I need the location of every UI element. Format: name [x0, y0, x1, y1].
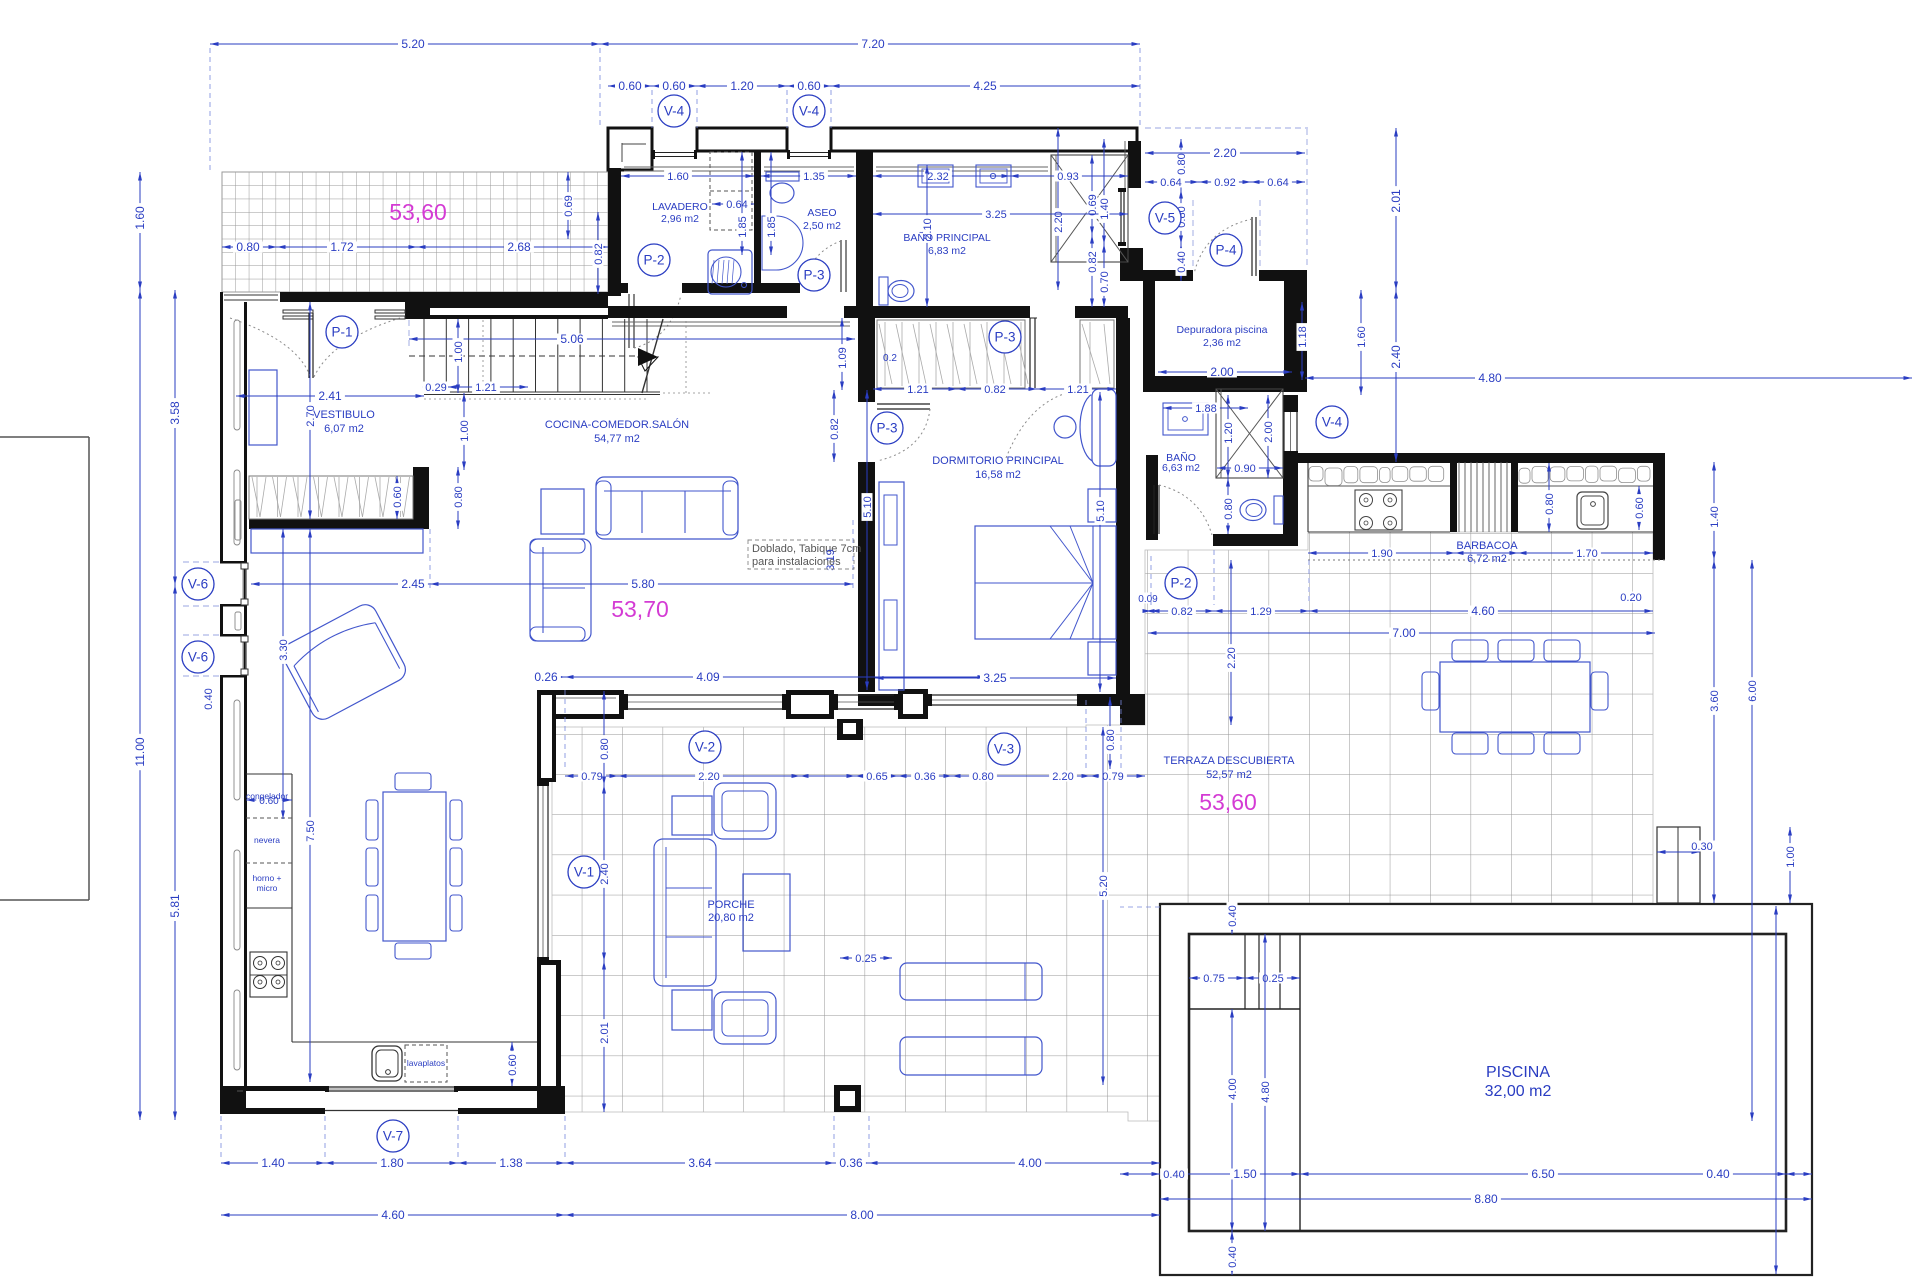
svg-text:0.90: 0.90: [1234, 463, 1255, 475]
svg-text:3.19: 3.19: [825, 549, 837, 570]
svg-text:0.2: 0.2: [883, 353, 897, 364]
svg-text:DORMITORIO PRINCIPAL: DORMITORIO PRINCIPAL: [932, 455, 1064, 467]
svg-text:2.20: 2.20: [1213, 146, 1237, 160]
svg-text:0.40: 0.40: [1176, 251, 1188, 272]
svg-text:1.00: 1.00: [459, 420, 471, 441]
svg-text:0.82: 0.82: [984, 384, 1005, 396]
svg-text:0.60: 0.60: [1634, 497, 1646, 518]
svg-text:1.90: 1.90: [1371, 548, 1392, 560]
svg-text:0.80: 0.80: [972, 771, 993, 783]
svg-text:1.40: 1.40: [261, 1156, 285, 1170]
svg-text:0.70: 0.70: [1099, 271, 1111, 292]
svg-text:horno +: horno +: [252, 873, 281, 883]
svg-text:4.00: 4.00: [1018, 1156, 1042, 1170]
svg-text:1.09: 1.09: [837, 347, 849, 368]
svg-text:V-4: V-4: [1322, 415, 1343, 430]
svg-text:1.60: 1.60: [1356, 326, 1368, 347]
svg-text:6,63 m2: 6,63 m2: [1162, 462, 1200, 474]
svg-text:0.79: 0.79: [1102, 771, 1123, 783]
svg-text:1.88: 1.88: [1195, 403, 1216, 415]
svg-text:8.00: 8.00: [850, 1208, 874, 1222]
svg-text:0.25: 0.25: [1262, 973, 1283, 985]
svg-text:4.00: 4.00: [1227, 1078, 1239, 1099]
svg-text:0.80: 0.80: [236, 240, 260, 254]
svg-text:1.40: 1.40: [1099, 198, 1111, 219]
svg-text:2.32: 2.32: [927, 171, 948, 183]
svg-text:1.29: 1.29: [1250, 606, 1271, 618]
svg-text:0.82: 0.82: [829, 418, 841, 439]
svg-text:1.20: 1.20: [1223, 422, 1235, 443]
svg-text:P-2: P-2: [1170, 576, 1191, 591]
svg-text:2.40: 2.40: [1389, 345, 1403, 369]
svg-text:0.92: 0.92: [1214, 177, 1235, 189]
svg-text:0.80: 0.80: [1176, 153, 1188, 174]
svg-text:0.80: 0.80: [1544, 493, 1556, 514]
svg-text:0.69: 0.69: [563, 195, 575, 216]
svg-text:0.20: 0.20: [1620, 592, 1641, 604]
svg-text:0.69: 0.69: [1087, 194, 1099, 215]
svg-text:V-6: V-6: [188, 650, 208, 665]
svg-text:1.85: 1.85: [766, 216, 778, 237]
svg-text:2.40: 2.40: [599, 863, 611, 884]
svg-text:P-1: P-1: [331, 325, 352, 340]
svg-text:1.38: 1.38: [499, 1156, 523, 1170]
svg-text:0.30: 0.30: [1691, 841, 1712, 853]
svg-text:0.64: 0.64: [1267, 177, 1288, 189]
svg-text:V-4: V-4: [664, 104, 685, 119]
svg-text:52,57 m2: 52,57 m2: [1206, 769, 1252, 781]
svg-text:0.82: 0.82: [1171, 606, 1192, 618]
svg-text:2.20: 2.20: [1226, 647, 1238, 668]
svg-text:1.35: 1.35: [803, 171, 824, 183]
svg-text:7.00: 7.00: [1392, 626, 1416, 640]
svg-text:4.80: 4.80: [1260, 1081, 1272, 1102]
svg-text:3.25: 3.25: [985, 209, 1006, 221]
svg-text:0.36: 0.36: [914, 771, 935, 783]
svg-text:P-4: P-4: [1215, 243, 1237, 258]
svg-text:53,60: 53,60: [389, 199, 447, 225]
svg-text:BARBACOA: BARBACOA: [1456, 540, 1518, 552]
svg-text:0.80: 0.80: [1105, 729, 1117, 750]
svg-text:V-3: V-3: [994, 742, 1014, 757]
svg-text:Depuradora piscina: Depuradora piscina: [1176, 324, 1267, 336]
svg-text:ASEO: ASEO: [807, 207, 836, 219]
svg-text:53,70: 53,70: [611, 596, 669, 622]
svg-text:PORCHE: PORCHE: [707, 899, 754, 911]
svg-text:0.36: 0.36: [839, 1156, 863, 1170]
svg-text:2.00: 2.00: [1263, 421, 1275, 442]
svg-text:2.68: 2.68: [507, 240, 531, 254]
svg-text:2.20: 2.20: [1052, 771, 1073, 783]
svg-text:0.26: 0.26: [534, 670, 558, 684]
svg-text:0.25: 0.25: [855, 953, 876, 965]
svg-text:0.40: 0.40: [1227, 905, 1239, 926]
svg-text:0.80: 0.80: [453, 486, 465, 507]
svg-text:16,58 m2: 16,58 m2: [975, 469, 1021, 481]
svg-text:6,07 m2: 6,07 m2: [324, 423, 364, 435]
svg-text:1.21: 1.21: [907, 384, 928, 396]
svg-text:3.64: 3.64: [688, 1156, 712, 1170]
svg-text:5.20: 5.20: [401, 37, 425, 51]
svg-text:2,96 m2: 2,96 m2: [661, 213, 699, 225]
svg-text:0.64: 0.64: [726, 199, 747, 211]
svg-text:54,77 m2: 54,77 m2: [594, 433, 640, 445]
svg-text:8.80: 8.80: [1474, 1192, 1498, 1206]
svg-text:2.41: 2.41: [318, 389, 342, 403]
svg-text:0.09: 0.09: [1138, 594, 1158, 605]
svg-text:congelador: congelador: [246, 791, 288, 801]
svg-text:4.80: 4.80: [1478, 371, 1502, 385]
svg-text:1.60: 1.60: [667, 171, 688, 183]
svg-text:0.82: 0.82: [593, 243, 605, 264]
svg-text:0.40: 0.40: [1227, 1246, 1239, 1267]
svg-text:7.20: 7.20: [861, 37, 885, 51]
svg-text:Doblado, Tabique 7cm: Doblado, Tabique 7cm: [752, 543, 861, 555]
svg-text:V-2: V-2: [695, 740, 715, 755]
svg-text:V-5: V-5: [1155, 211, 1175, 226]
svg-text:PISCINA: PISCINA: [1486, 1064, 1550, 1081]
svg-text:nevera: nevera: [254, 835, 280, 845]
svg-text:P-2: P-2: [643, 253, 664, 268]
svg-text:2.45: 2.45: [401, 577, 425, 591]
svg-text:1.18: 1.18: [1297, 326, 1309, 347]
svg-text:1.21: 1.21: [1067, 384, 1088, 396]
svg-text:1.80: 1.80: [380, 1156, 404, 1170]
svg-text:0.40: 0.40: [203, 688, 215, 709]
svg-text:2.00: 2.00: [1210, 365, 1234, 379]
svg-text:micro: micro: [257, 883, 278, 893]
svg-text:0.93: 0.93: [1057, 171, 1078, 183]
svg-text:LAVADERO: LAVADERO: [652, 201, 708, 213]
svg-text:BAÑO PRINCIPAL: BAÑO PRINCIPAL: [903, 231, 990, 244]
svg-text:0.80: 0.80: [599, 738, 611, 759]
svg-text:2.20: 2.20: [698, 771, 719, 783]
svg-text:V-7: V-7: [383, 1129, 403, 1144]
svg-text:0.29: 0.29: [425, 382, 446, 394]
svg-text:1.00: 1.00: [453, 341, 465, 362]
svg-text:1.60: 1.60: [133, 206, 147, 230]
svg-text:3.30: 3.30: [278, 639, 290, 660]
svg-text:0.82: 0.82: [1087, 251, 1099, 272]
svg-text:0.80: 0.80: [1223, 498, 1235, 519]
svg-text:1.70: 1.70: [1576, 548, 1597, 560]
svg-text:0.75: 0.75: [1203, 973, 1224, 985]
svg-text:0.40: 0.40: [1163, 1169, 1184, 1181]
svg-text:5.10: 5.10: [862, 496, 874, 517]
svg-text:1.85: 1.85: [737, 216, 749, 237]
svg-text:2,36 m2: 2,36 m2: [1203, 337, 1241, 349]
svg-text:1.72: 1.72: [330, 240, 354, 254]
svg-text:4.09: 4.09: [696, 670, 720, 684]
svg-text:53,60: 53,60: [1199, 789, 1257, 815]
svg-text:5.10: 5.10: [1095, 500, 1107, 521]
svg-text:4.60: 4.60: [381, 1208, 405, 1222]
svg-text:6,72 m2: 6,72 m2: [1467, 553, 1507, 565]
svg-text:5.20: 5.20: [1098, 875, 1110, 896]
svg-text:V-1: V-1: [574, 865, 594, 880]
svg-text:5.06: 5.06: [560, 332, 584, 346]
svg-text:2,50 m2: 2,50 m2: [803, 220, 841, 232]
svg-text:2.01: 2.01: [599, 1022, 611, 1043]
svg-text:0.40: 0.40: [1706, 1167, 1730, 1181]
svg-text:TERRAZA DESCUBIERTA: TERRAZA DESCUBIERTA: [1163, 755, 1295, 767]
svg-text:0.60: 0.60: [507, 1054, 519, 1075]
svg-text:V-6: V-6: [188, 577, 208, 592]
svg-text:0.60: 0.60: [618, 79, 642, 93]
svg-text:COCINA-COMEDOR.SALÓN: COCINA-COMEDOR.SALÓN: [545, 418, 689, 431]
svg-text:5.81: 5.81: [168, 894, 182, 918]
svg-text:1.21: 1.21: [475, 382, 496, 394]
svg-text:3.25: 3.25: [983, 671, 1007, 685]
svg-text:4.25: 4.25: [973, 79, 997, 93]
svg-text:5.80: 5.80: [631, 577, 655, 591]
svg-text:11.00: 11.00: [133, 737, 147, 766]
svg-text:0.79: 0.79: [581, 771, 602, 783]
svg-text:1.20: 1.20: [730, 79, 754, 93]
svg-text:2.01: 2.01: [1389, 189, 1403, 213]
svg-text:VESTIBULO: VESTIBULO: [313, 409, 375, 421]
svg-text:V-4: V-4: [799, 104, 820, 119]
svg-text:lavaplatos: lavaplatos: [407, 1058, 445, 1068]
svg-text:P-3: P-3: [994, 330, 1015, 345]
svg-text:4.60: 4.60: [1471, 604, 1495, 618]
svg-text:20,80 m2: 20,80 m2: [708, 912, 754, 924]
svg-text:P-3: P-3: [876, 421, 897, 436]
svg-text:3.60: 3.60: [1709, 690, 1721, 711]
svg-text:P-3: P-3: [803, 268, 824, 283]
svg-text:0.64: 0.64: [1160, 177, 1181, 189]
svg-text:0.65: 0.65: [866, 771, 887, 783]
svg-text:0.60: 0.60: [662, 79, 686, 93]
svg-text:3.58: 3.58: [168, 401, 182, 425]
svg-text:1.40: 1.40: [1709, 506, 1721, 527]
svg-text:6.50: 6.50: [1531, 1167, 1555, 1181]
svg-text:1.50: 1.50: [1233, 1167, 1257, 1181]
svg-text:6,83 m2: 6,83 m2: [928, 245, 966, 257]
svg-text:32,00 m2: 32,00 m2: [1485, 1083, 1552, 1100]
svg-text:6.00: 6.00: [1747, 680, 1759, 701]
svg-text:2.20: 2.20: [1053, 211, 1065, 232]
svg-text:7.50: 7.50: [305, 820, 317, 841]
svg-text:0.60: 0.60: [392, 486, 404, 507]
svg-text:1.00: 1.00: [1785, 846, 1797, 867]
svg-text:0.60: 0.60: [797, 79, 821, 93]
